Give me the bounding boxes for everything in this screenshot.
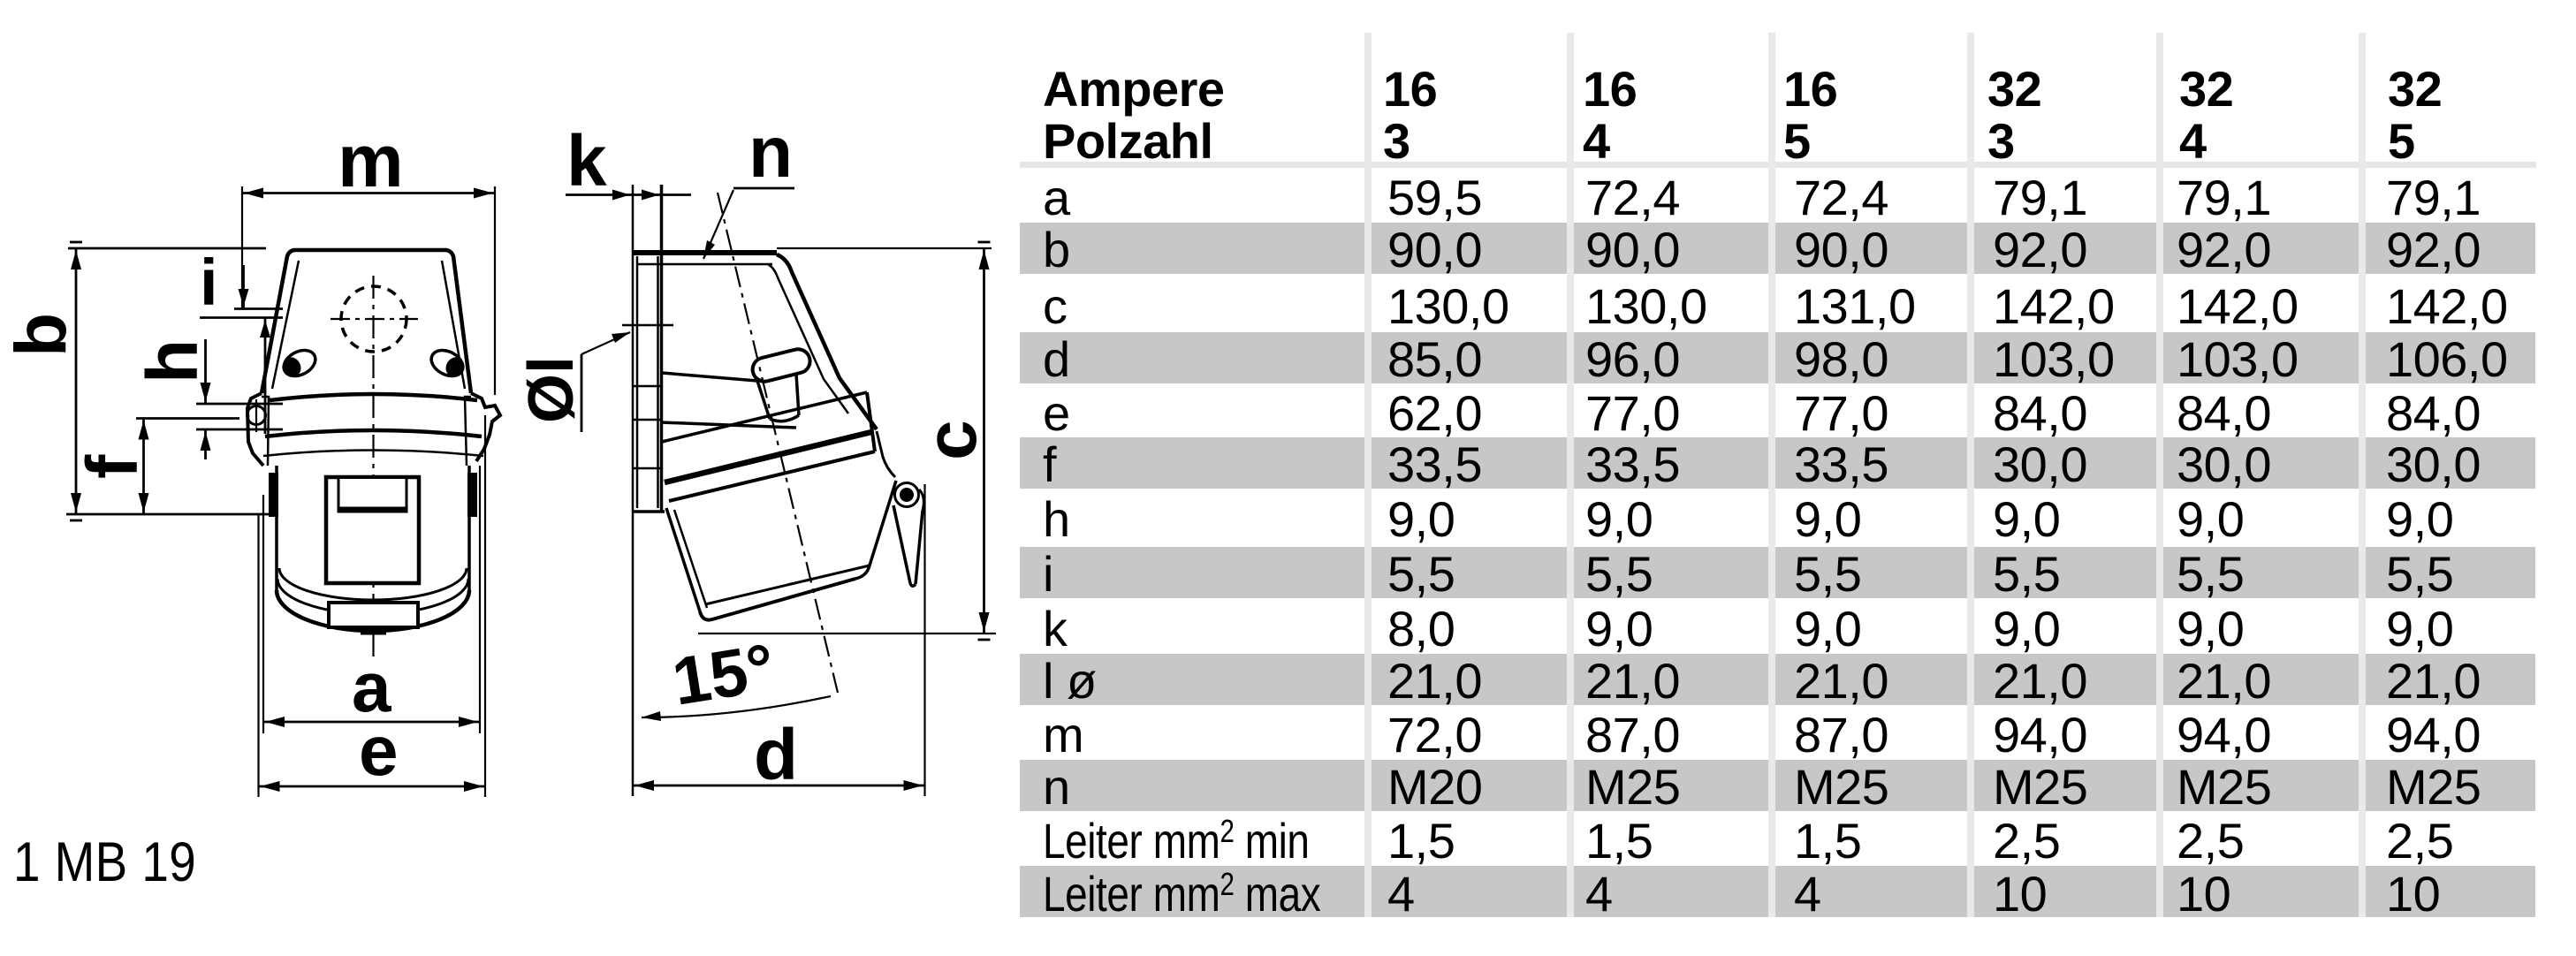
svg-text:i: i (200, 246, 218, 319)
svg-text:f: f (72, 454, 153, 479)
svg-text:n: n (748, 112, 793, 193)
svg-text:m: m (338, 119, 404, 202)
svg-text:h: h (133, 339, 213, 383)
svg-text:Øl: Øl (516, 356, 587, 423)
svg-text:d: d (754, 715, 798, 795)
svg-text:k: k (566, 121, 607, 201)
svg-text:15°: 15° (667, 630, 779, 720)
svg-text:b: b (2, 313, 82, 357)
svg-text:e: e (359, 711, 399, 790)
svg-text:c: c (911, 420, 992, 460)
